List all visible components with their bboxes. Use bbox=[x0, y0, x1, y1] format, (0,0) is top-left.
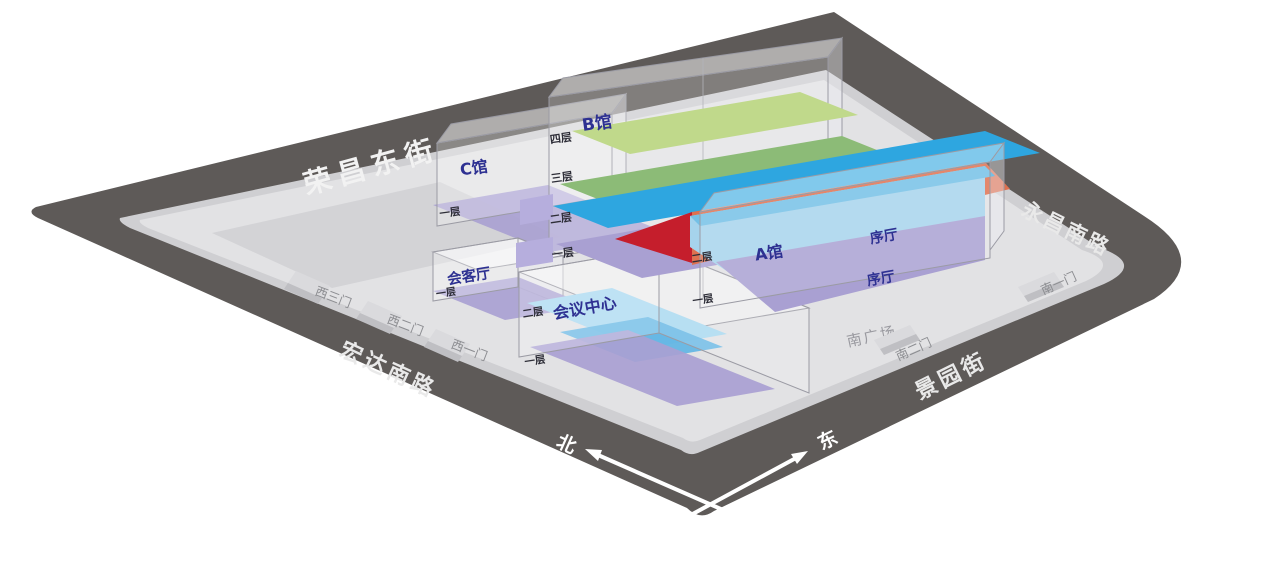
site-map-stage: 南广场 荣昌东街 永昌南路 宏达南路 景园街 西三门 西二门 西一门 南二门 bbox=[0, 0, 1280, 579]
hall-a-box-right bbox=[990, 143, 1004, 250]
hall-c-label: C馆 bbox=[459, 157, 489, 180]
hall-b-label: B馆 bbox=[581, 111, 614, 136]
exhibition-center-site-map: 南广场 荣昌东街 永昌南路 宏达南路 景园街 西三门 西二门 西一门 南二门 bbox=[0, 0, 1280, 579]
